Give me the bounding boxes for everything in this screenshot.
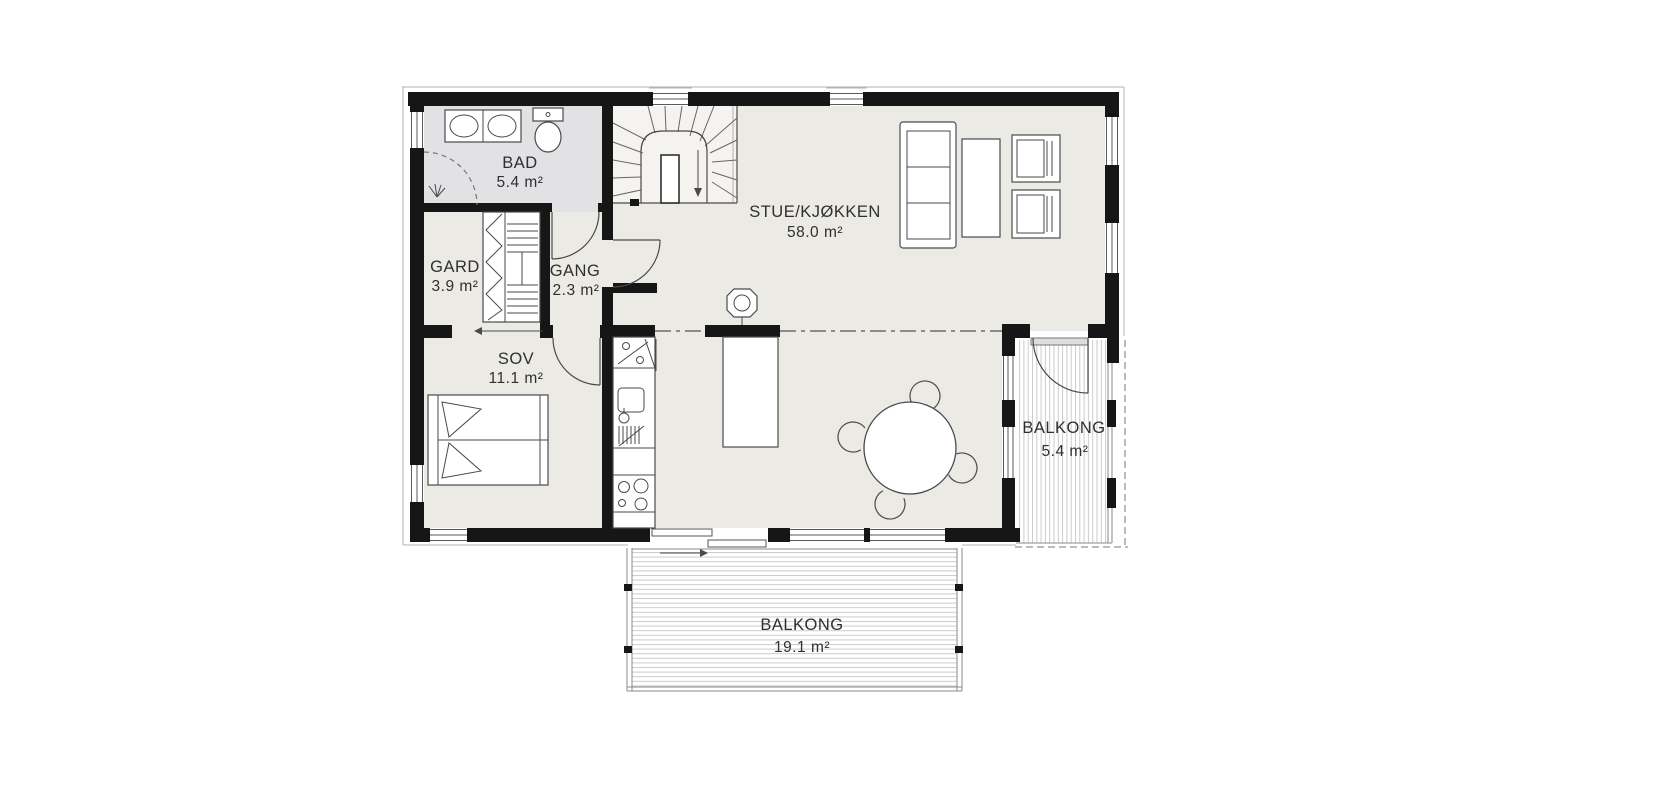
double-bed [428, 395, 548, 485]
window [430, 528, 467, 542]
room-label-bad: BAD [502, 154, 537, 172]
window [1105, 223, 1119, 273]
window [826, 88, 867, 106]
dining-table [864, 402, 956, 494]
kitchen-counter [613, 337, 656, 528]
room-label-sov: SOV [498, 350, 534, 368]
window [1002, 427, 1015, 478]
double-sink-vanity [445, 110, 521, 142]
railing-post [624, 646, 632, 653]
room-area-sov: 11.1 m² [489, 370, 544, 387]
armchair [1012, 190, 1060, 238]
floor-plan-drawing: BAD 5.4 m² GARD 3.9 m² GANG 2.3 m² SOV 1… [0, 0, 1670, 800]
room-area-stue: 58.0 m² [787, 224, 843, 241]
window [410, 112, 424, 148]
window [1002, 356, 1015, 400]
railing-post [624, 584, 632, 591]
window [410, 465, 424, 502]
window [1105, 117, 1119, 165]
room-area-balkong-east: 5.4 m² [1042, 443, 1089, 460]
room-label-balkong-south: BALKONG [760, 616, 843, 634]
stair-tick [630, 199, 639, 206]
coffee-table [962, 139, 1000, 237]
wardrobe-closet [483, 212, 540, 322]
room-label-gang: GANG [550, 262, 601, 280]
room-label-balkong-east: BALKONG [1022, 419, 1105, 437]
floor-plan-canvas: BAD 5.4 m² GARD 3.9 m² GANG 2.3 m² SOV 1… [0, 0, 1670, 800]
kitchen-island [723, 337, 778, 447]
room-area-gang: 2.3 m² [553, 282, 600, 299]
room-label-gard: GARD [430, 258, 480, 276]
window [790, 528, 945, 542]
stair-newel-post [661, 155, 679, 203]
railing-post [1107, 338, 1119, 363]
sofa [900, 122, 956, 248]
railing-post [955, 584, 963, 591]
window [649, 88, 692, 106]
railing-post [1107, 478, 1116, 508]
room-label-stue: STUE/KJØKKEN [749, 203, 881, 221]
armchair [1012, 135, 1060, 182]
railing-post [955, 646, 963, 653]
room-area-bad: 5.4 m² [497, 174, 544, 191]
toilet [533, 108, 563, 152]
room-area-gard: 3.9 m² [432, 278, 479, 295]
room-area-balkong-south: 19.1 m² [774, 639, 830, 656]
railing-post [1107, 400, 1116, 427]
